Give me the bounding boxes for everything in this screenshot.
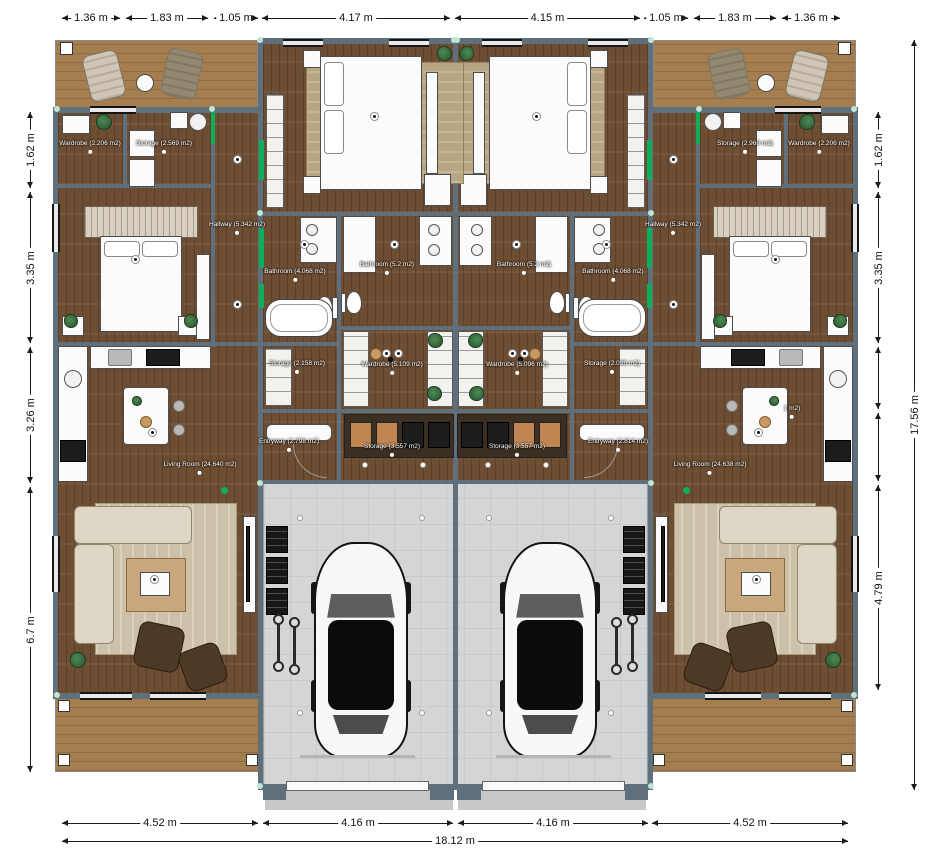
dresser	[460, 174, 487, 206]
junction-dot	[851, 692, 857, 698]
wardrobe-unit	[196, 254, 210, 340]
wall	[123, 107, 127, 188]
garage-drain	[300, 755, 415, 758]
room-label-entryway: Entryway (2.798 m2)	[259, 438, 319, 452]
junction-dot	[54, 692, 60, 698]
deck-post	[653, 754, 665, 766]
window-icon	[150, 692, 206, 700]
dim-left-2: 3.35 m	[30, 192, 31, 343]
kitchen-sink	[829, 370, 847, 388]
deck-post	[841, 700, 853, 712]
junction-dot	[648, 480, 654, 486]
plant	[70, 652, 86, 668]
ceiling-light-symbol	[602, 240, 611, 249]
wall	[258, 342, 341, 346]
dim-right-3: 4.79 m	[878, 485, 879, 690]
dim-left-1: 1.62 m	[30, 112, 31, 188]
plant	[468, 333, 483, 348]
dim-left-3: 3.26 m	[30, 347, 31, 483]
room-label-text: Storage (3.557 m2)	[364, 443, 420, 450]
garage-door	[286, 781, 429, 791]
locker-door	[428, 422, 450, 448]
bowl	[140, 416, 152, 428]
dresser	[62, 115, 90, 134]
storage-closet	[265, 348, 292, 406]
stool	[529, 348, 541, 360]
window-icon	[389, 39, 429, 47]
ceiling-light-symbol	[148, 428, 157, 437]
glass-door-marker	[647, 284, 652, 308]
floor-plan-canvas: Wardrobe (2.206 m2) Storage (2.569 m2) H…	[0, 0, 947, 868]
kitchen-sink	[64, 370, 82, 388]
dim-top-7: 1.83 m	[694, 18, 776, 19]
bowl	[759, 416, 771, 428]
armchair	[132, 620, 187, 675]
bathtub	[265, 299, 333, 337]
dim-label: 4.17 m	[336, 12, 376, 25]
dim-right-2: 3.35 m	[878, 192, 879, 343]
junction-dot	[257, 480, 263, 486]
dim-label: 3.26 m	[25, 395, 37, 435]
junction-dot	[257, 37, 263, 43]
room-label-text: Storage (2.968 m2)	[717, 140, 773, 147]
ceiling-light-symbol	[419, 710, 425, 716]
dresser	[821, 115, 849, 134]
dim-right-small-2	[878, 413, 879, 481]
ceiling-light-symbol	[300, 240, 309, 249]
window-icon	[52, 536, 60, 592]
sofa	[719, 506, 837, 544]
pillow	[324, 62, 344, 106]
ceiling-light-symbol	[485, 462, 491, 468]
junction-dot	[54, 106, 60, 112]
pillow	[567, 62, 587, 106]
headboard	[713, 206, 827, 238]
room-label-text: Bathroom (5.2 m2)	[497, 261, 551, 268]
room-label-storage: Storage (3.557 m2)	[364, 443, 420, 457]
pillow	[142, 241, 178, 257]
tv-icon	[246, 526, 250, 602]
tv-icon	[661, 526, 665, 602]
room-label-text: 1 m2)	[784, 405, 801, 412]
dim-top-6: 1.05 m	[644, 18, 688, 19]
ceiling-light-symbol	[362, 462, 368, 468]
driveway-apron	[265, 790, 453, 810]
room-label-text: Storage (3.557 m2)	[489, 443, 545, 450]
room-label-storage: Storage (2.158 m2)	[269, 360, 325, 374]
bicycle-icon	[626, 614, 640, 672]
wall	[337, 346, 341, 484]
green-dot-marker	[683, 487, 690, 494]
plant	[427, 386, 442, 401]
junction-dot	[257, 783, 263, 789]
wall	[430, 784, 454, 800]
room-label-text: Living Room (24.638 m2)	[674, 461, 747, 468]
sink	[471, 224, 483, 236]
room-label-text: Living Room (24.640 m2)	[164, 461, 237, 468]
room-label-text: Storage (2.098 m2)	[584, 360, 640, 367]
dim-top-5: 4.15 m	[455, 18, 640, 19]
plant	[713, 314, 727, 328]
dim-label: 1.62 m	[25, 130, 37, 170]
bicycle-icon	[610, 617, 624, 675]
garage-shelf	[623, 526, 645, 553]
sink	[428, 244, 440, 256]
stool	[370, 348, 382, 360]
ceiling-light-symbol	[752, 575, 761, 584]
room-label-hallway: Hallway (5.342 m2)	[209, 221, 265, 235]
room-label-living-room: Living Room (24.640 m2)	[164, 461, 237, 475]
wall	[648, 107, 858, 113]
dim-label: 17.56 m	[909, 392, 921, 438]
wardrobe-unit	[701, 254, 715, 340]
dim-label: 6.7 m	[25, 613, 37, 647]
dim-right-1: 1.62 m	[878, 112, 879, 188]
stool	[173, 424, 185, 436]
room-label-text: Bathroom (5.2 m2)	[360, 261, 414, 268]
ceiling-light-symbol	[543, 462, 549, 468]
wall	[570, 342, 653, 346]
deck-post	[246, 754, 258, 766]
sink	[428, 224, 440, 236]
plant	[96, 114, 112, 130]
ceiling-light-symbol	[669, 300, 678, 309]
room-label-bathroom: Bathroom (4.068 m2)	[264, 268, 325, 282]
headboard	[84, 206, 198, 238]
glass-door-marker	[259, 140, 264, 180]
dim-top-3: 1.05 m	[214, 18, 258, 19]
wall	[455, 326, 570, 330]
room-label-storage: Storage (2.569 m2)	[136, 140, 192, 154]
room-label-text: Bathroom (4.068 m2)	[264, 268, 325, 275]
stool	[726, 424, 738, 436]
toilet-tank	[565, 293, 570, 313]
locker-door	[461, 422, 483, 448]
garage-door	[482, 781, 625, 791]
appliance	[779, 349, 803, 366]
dresser	[424, 174, 451, 206]
room-label-text: Storage (2.569 m2)	[136, 140, 192, 147]
oven	[825, 440, 851, 462]
car-top-view	[314, 542, 408, 758]
window-icon	[80, 692, 132, 700]
junction-dot	[851, 106, 857, 112]
ceiling-light-symbol	[370, 112, 379, 121]
toilet-tank	[341, 293, 346, 313]
glass-door-marker	[211, 112, 215, 144]
junction-dot	[648, 210, 654, 216]
closet	[266, 94, 284, 208]
room-label-wardrobe: Wardrobe (2.206 m2)	[59, 140, 121, 154]
sink	[593, 224, 605, 236]
room-label-wardrobe: Wardrobe (5.109 m2)	[361, 361, 423, 375]
ceiling-light-symbol	[771, 255, 780, 264]
dim-label: 18.12 m	[432, 835, 478, 848]
laundry-unit	[170, 112, 188, 129]
garage-drain	[496, 755, 611, 758]
plant	[469, 386, 484, 401]
room-label-text: Wardrobe (5.096 m2)	[486, 361, 548, 368]
ceiling-light-symbol	[532, 112, 541, 121]
cooktop	[731, 349, 765, 366]
wall	[258, 409, 456, 413]
dim-top-8: 1.36 m	[782, 18, 840, 19]
plant	[428, 333, 443, 348]
dim-bottom-total: 18.12 m	[62, 841, 848, 842]
sofa	[74, 506, 192, 544]
dim-bottom-1: 4.52 m	[62, 823, 258, 824]
room-label-storage: Storage (3.557 m2)	[489, 443, 545, 457]
window-icon	[779, 692, 831, 700]
sink	[471, 244, 483, 256]
armchair	[725, 620, 780, 675]
wall	[625, 784, 648, 800]
ceiling-light-symbol	[608, 710, 614, 716]
deck-post	[838, 42, 851, 55]
ceiling-light-symbol	[390, 240, 399, 249]
window-icon	[283, 39, 323, 47]
garage-shelf	[266, 526, 288, 553]
deck-post	[58, 754, 70, 766]
nightstand	[303, 50, 321, 68]
plant	[64, 314, 78, 328]
window-icon	[482, 39, 522, 47]
room-label-text: Hallway (5.342 m2)	[645, 221, 701, 228]
ceiling-light-symbol	[233, 300, 242, 309]
cooktop	[146, 349, 180, 366]
junction-dot	[648, 37, 654, 43]
wall	[455, 480, 653, 484]
ceiling-light-symbol	[486, 515, 492, 521]
dim-label: 3.35 m	[25, 248, 37, 288]
ceiling-light-symbol	[512, 240, 521, 249]
sink	[306, 224, 318, 236]
wall	[341, 326, 456, 330]
room-label-text: Wardrobe (5.109 m2)	[361, 361, 423, 368]
dim-label: 1.05 m	[216, 12, 256, 25]
oven	[60, 440, 86, 462]
bicycle-icon	[287, 617, 301, 675]
window-icon	[851, 536, 859, 592]
dim-label: 4.16 m	[338, 817, 378, 830]
garage-shelf	[266, 557, 288, 584]
ceiling-light-symbol	[754, 428, 763, 437]
room-label-storage: Storage (2.968 m2)	[717, 140, 773, 154]
deck-bottom	[648, 698, 856, 772]
plant	[132, 396, 142, 406]
room-label-wardrobe: Wardrobe (2.206 m2)	[788, 140, 850, 154]
room-label-text: Entryway (2.814 m2)	[588, 438, 648, 445]
deck-post	[60, 42, 73, 55]
room-label-bathroom: Bathroom (5.2 m2)	[497, 261, 551, 275]
room-label-text: Bathroom (4.068 m2)	[582, 268, 643, 275]
room-label-storage: Storage (2.098 m2)	[584, 360, 640, 374]
appliance	[108, 349, 132, 366]
room-label-text: Storage (2.158 m2)	[269, 360, 325, 367]
dim-label: 4.15 m	[528, 12, 568, 25]
deck-post	[841, 754, 853, 766]
driveway-apron	[458, 790, 646, 810]
room-label-hallway: Hallway (5.342 m2)	[645, 221, 701, 235]
plant	[769, 396, 779, 406]
room-label-bathroom: Bathroom (4.068 m2)	[582, 268, 643, 282]
plant	[459, 46, 474, 61]
junction-dot	[696, 106, 702, 112]
room-label-entryway: Entryway (2.814 m2)	[588, 438, 648, 452]
sofa	[797, 544, 837, 644]
deck-bottom	[55, 698, 263, 772]
nightstand	[590, 176, 608, 194]
dim-bottom-3: 4.16 m	[458, 823, 648, 824]
plant	[437, 46, 452, 61]
dim-top-1: 1.36 m	[62, 18, 120, 19]
ceiling-light-symbol	[486, 710, 492, 716]
nightstand	[590, 50, 608, 68]
toilet	[346, 291, 362, 314]
dim-top-4: 4.17 m	[262, 18, 450, 19]
room-label-living-room: Living Room (24.638 m2)	[674, 461, 747, 475]
garage-shelf	[623, 588, 645, 615]
ceiling-light-symbol	[233, 155, 242, 164]
ceiling-light-symbol	[508, 349, 517, 358]
room-label-text: Entryway (2.798 m2)	[259, 438, 319, 445]
room-label-wardrobe: Wardrobe (5.096 m2)	[486, 361, 548, 375]
garage-shelf	[266, 588, 288, 615]
junction-dot	[648, 783, 654, 789]
pillow	[733, 241, 769, 257]
closet	[627, 94, 645, 208]
wall	[853, 107, 858, 699]
green-dot-marker	[221, 487, 228, 494]
dim-label: 1.83 m	[715, 12, 755, 25]
dim-label: 4.52 m	[730, 817, 770, 830]
toilet	[549, 291, 565, 314]
wall	[53, 107, 263, 113]
glass-door-marker	[259, 284, 264, 308]
window-icon	[851, 204, 859, 252]
ceiling-light-symbol	[297, 710, 303, 716]
wall	[263, 784, 286, 800]
room-label-kitchen-partial: 1 m2)	[784, 405, 801, 419]
room-label-text: Wardrobe (2.206 m2)	[59, 140, 121, 147]
wall	[457, 784, 481, 800]
patio-table	[757, 74, 775, 92]
plant	[799, 114, 815, 130]
dim-label: 4.52 m	[140, 817, 180, 830]
dim-label: 4.79 m	[873, 568, 885, 608]
room-label-text: Wardrobe (2.206 m2)	[788, 140, 850, 147]
dim-label: 1.05 m	[646, 12, 686, 25]
bed-bench	[426, 72, 438, 174]
laundry-unit	[723, 112, 741, 129]
dim-label: 1.62 m	[873, 130, 885, 170]
dim-top-2: 1.83 m	[126, 18, 208, 19]
wall	[570, 346, 574, 484]
window-icon	[588, 39, 628, 47]
plant	[825, 652, 841, 668]
ceiling-light-symbol	[394, 349, 403, 358]
window-icon	[775, 106, 821, 114]
storage-closet	[619, 348, 646, 406]
dim-left-4: 6.7 m	[30, 487, 31, 772]
stool	[173, 400, 185, 412]
dim-label: 4.16 m	[533, 817, 573, 830]
dim-right-small-1	[878, 347, 879, 409]
window-icon	[705, 692, 761, 700]
ceiling-light-symbol	[150, 575, 159, 584]
glass-door-marker	[696, 112, 700, 144]
bed-bench	[473, 72, 485, 174]
ceiling-light-symbol	[297, 515, 303, 521]
window-icon	[90, 106, 136, 114]
plant	[833, 314, 847, 328]
cabinet	[756, 159, 782, 187]
dim-bottom-2: 4.16 m	[263, 823, 453, 824]
nightstand	[303, 176, 321, 194]
ceiling-light-symbol	[131, 255, 140, 264]
pillow	[567, 110, 587, 154]
junction-dot	[451, 37, 457, 43]
wall	[455, 409, 653, 413]
window-icon	[52, 204, 60, 252]
washer-icon	[704, 113, 722, 131]
deck-post	[58, 700, 70, 712]
patio-table	[136, 74, 154, 92]
ceiling-light-symbol	[420, 462, 426, 468]
glass-door-marker	[647, 140, 652, 180]
room-label-text: Hallway (5.342 m2)	[209, 221, 265, 228]
ceiling-light-symbol	[608, 515, 614, 521]
junction-dot	[209, 106, 215, 112]
wall	[258, 480, 456, 484]
dim-label: 1.36 m	[71, 12, 111, 25]
car-top-view	[503, 542, 597, 758]
garage-shelf	[623, 557, 645, 584]
plant	[184, 314, 198, 328]
dim-right-total: 17.56 m	[914, 40, 915, 790]
cabinet	[129, 159, 155, 187]
ceiling-light-symbol	[669, 155, 678, 164]
sofa	[74, 544, 114, 644]
washer-icon	[189, 113, 207, 131]
bathtub	[578, 299, 646, 337]
dim-bottom-4: 4.52 m	[652, 823, 848, 824]
bicycle-icon	[271, 614, 285, 672]
pillow	[324, 110, 344, 154]
stool	[726, 400, 738, 412]
dim-label: 1.36 m	[791, 12, 831, 25]
ceiling-light-symbol	[419, 515, 425, 521]
dim-label: 3.35 m	[873, 248, 885, 288]
junction-dot	[257, 210, 263, 216]
dim-label: 1.83 m	[147, 12, 187, 25]
room-label-bathroom: Bathroom (5.2 m2)	[360, 261, 414, 275]
